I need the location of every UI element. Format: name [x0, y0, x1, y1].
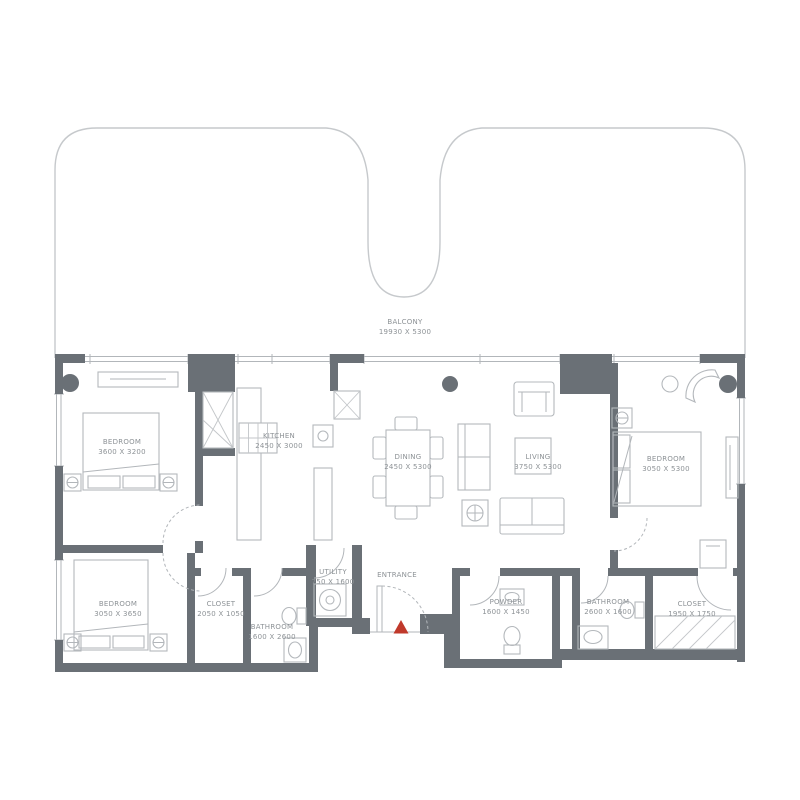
sink	[584, 631, 602, 644]
door-arc-utility	[314, 548, 344, 578]
toilet	[282, 608, 296, 625]
kitchen-counter	[314, 468, 332, 540]
vanity	[500, 589, 524, 605]
toilet	[504, 627, 520, 646]
washing-machine	[314, 584, 346, 616]
bedroom-2-furniture	[612, 370, 738, 568]
toilet-tank	[635, 602, 644, 618]
chair	[373, 437, 386, 459]
door-arc-bedroom-2	[614, 518, 647, 551]
column	[719, 375, 737, 393]
chair	[373, 476, 386, 498]
chair	[430, 437, 443, 459]
pillow	[79, 636, 110, 648]
door-arc-bathroom-2	[581, 576, 608, 603]
bathroom-2-fixtures	[578, 602, 644, 650]
door-arc-closet-1	[198, 568, 226, 596]
bathroom-1-fixtures	[282, 608, 306, 663]
closet-2-furniture	[655, 616, 735, 649]
chair	[395, 417, 417, 430]
toilet-tank	[504, 645, 520, 654]
dressing-table	[700, 540, 726, 568]
armchair	[514, 382, 554, 416]
door-arc-closet-2	[697, 576, 731, 610]
powder-fixtures	[500, 589, 524, 654]
side-table	[662, 376, 678, 392]
coffee-table	[515, 438, 551, 474]
entrance-door-leaf	[377, 586, 382, 632]
utility-fixtures	[314, 584, 346, 616]
door-arc-bedroom-1	[163, 505, 201, 543]
pillow	[113, 636, 144, 648]
column	[442, 376, 458, 392]
toilet-tank	[297, 608, 306, 624]
entrance-marker-icon	[394, 620, 409, 634]
floor-plan-drawing	[0, 0, 800, 800]
pillow	[88, 476, 120, 488]
balcony-outline	[55, 128, 745, 358]
pillow	[123, 476, 155, 488]
bed	[613, 432, 701, 506]
fan-chair	[686, 370, 719, 402]
sink	[505, 593, 519, 602]
columns	[61, 374, 737, 393]
kitchen-counter	[237, 388, 261, 540]
sink	[289, 642, 302, 658]
dining-furniture	[373, 417, 443, 519]
chair	[395, 506, 417, 519]
floor-plan: BALCONY 19930 X 5300 BEDROOM 3600 X 3200…	[0, 0, 800, 800]
vanity	[578, 626, 608, 649]
kitchen-sink	[313, 425, 333, 447]
dining-table	[386, 430, 430, 506]
toilet	[620, 602, 634, 619]
chair	[430, 476, 443, 498]
bed	[83, 413, 159, 490]
column	[61, 374, 79, 392]
dresser	[726, 437, 738, 498]
door-arc-powder	[470, 576, 499, 605]
bedroom-3-furniture	[64, 560, 167, 651]
door-arc-bathroom-1	[254, 568, 282, 596]
living-furniture	[458, 382, 564, 534]
kitchen-furniture	[237, 388, 360, 540]
